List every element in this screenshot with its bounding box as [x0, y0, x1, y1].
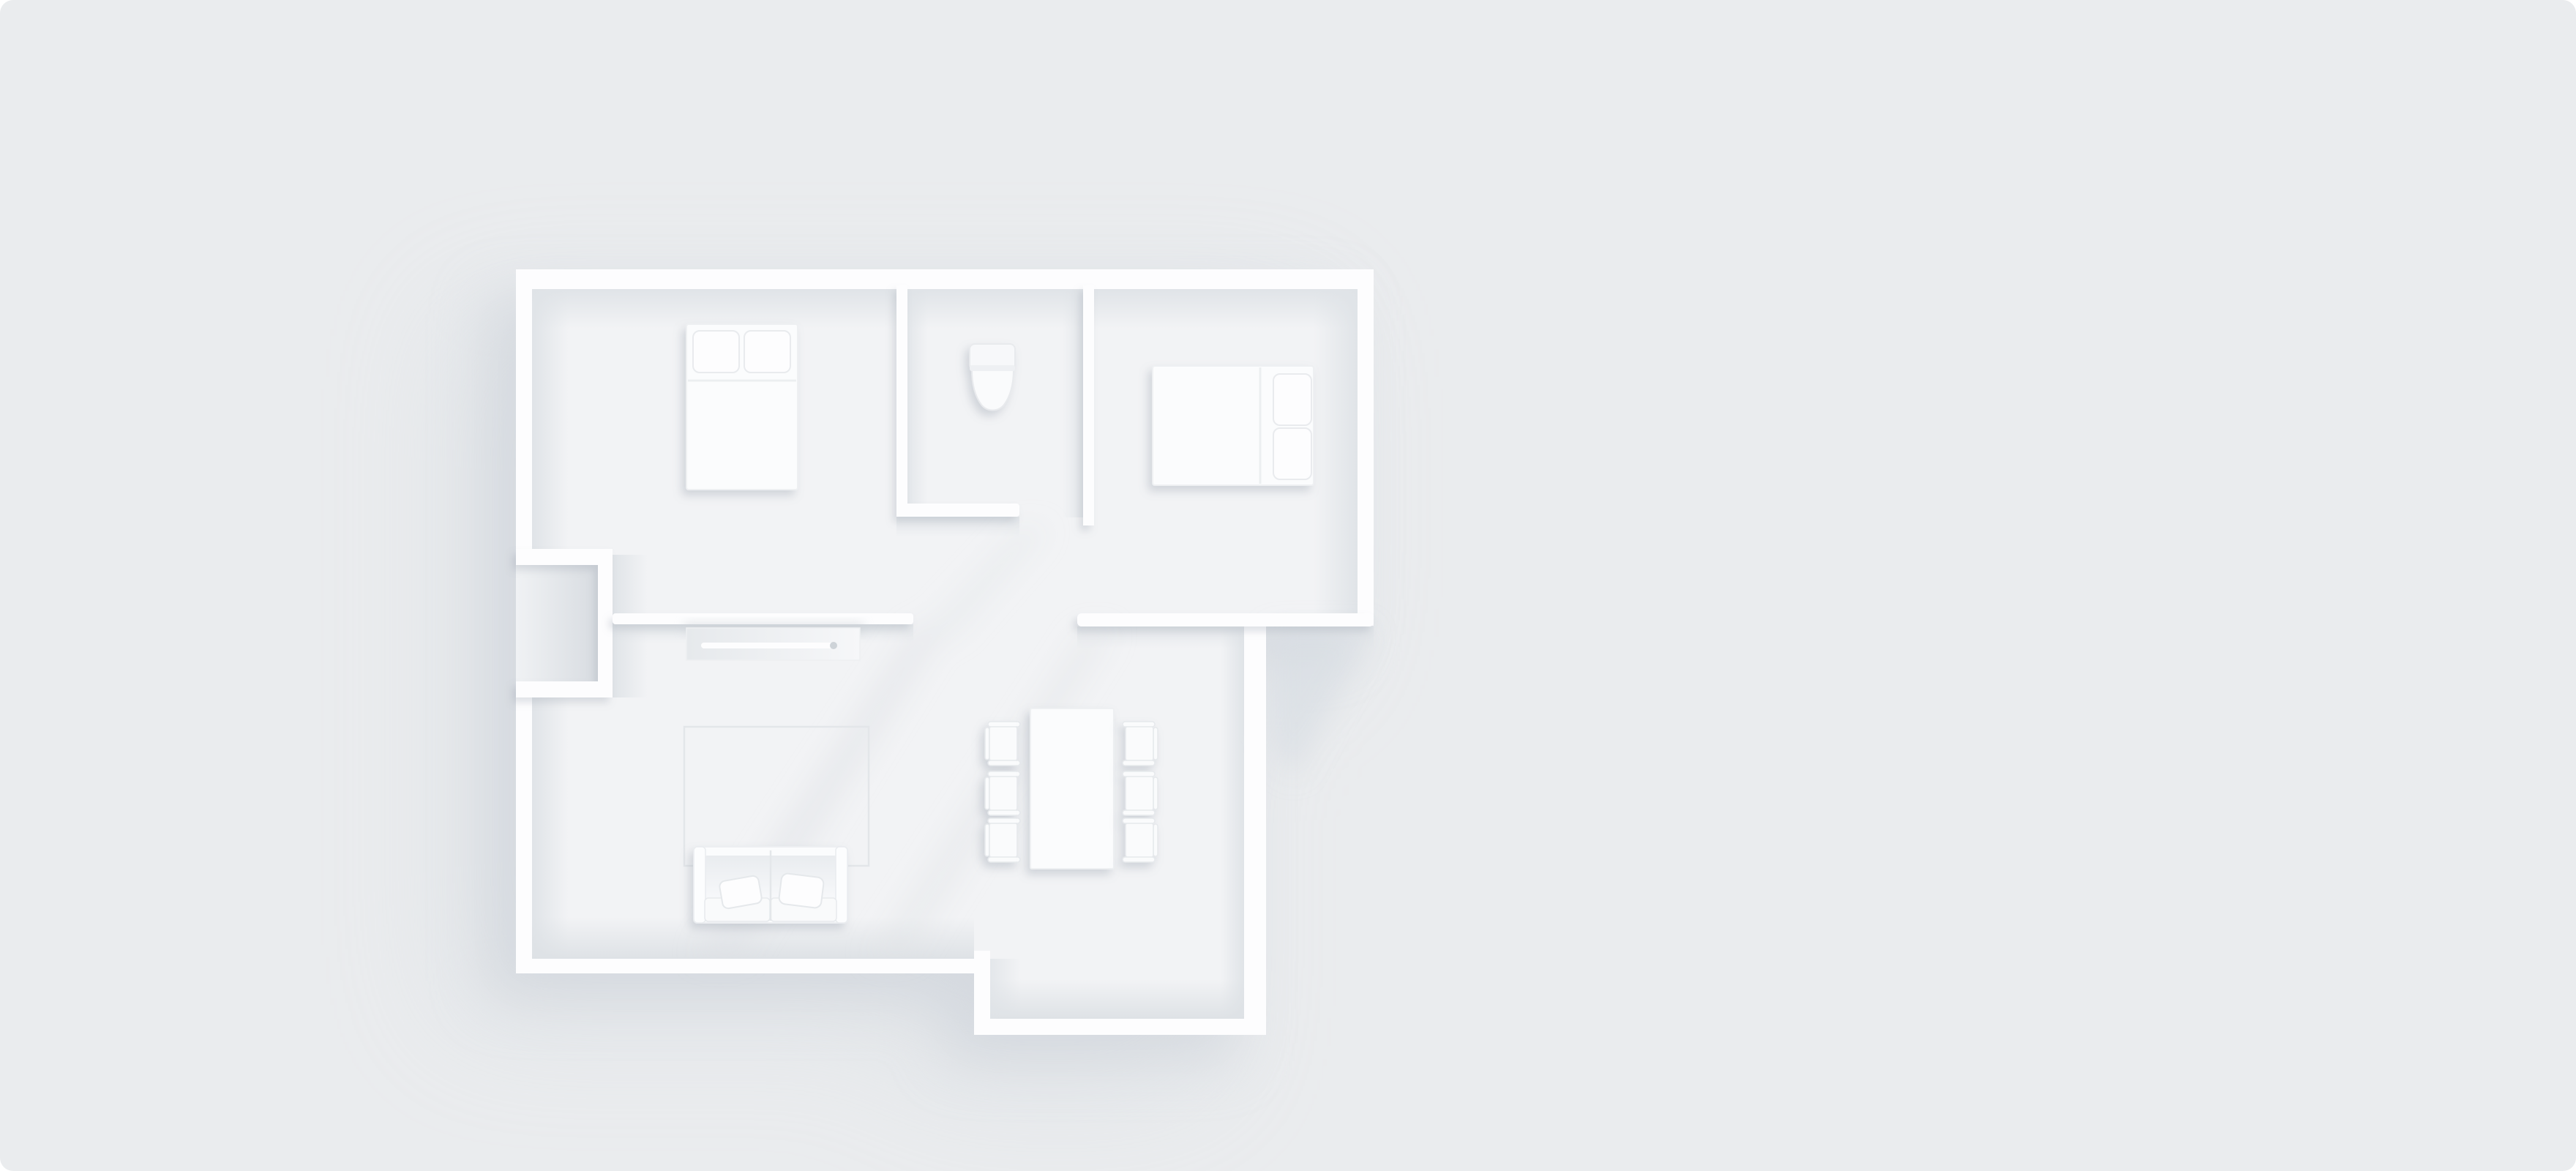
sofa — [694, 847, 847, 923]
bed2-pillow-top — [1273, 374, 1311, 425]
bed1-pillow-left — [693, 331, 739, 373]
chair — [985, 818, 1020, 862]
sofa-throw-pillow-right — [779, 873, 825, 909]
chair — [985, 771, 1020, 815]
wall-bathroom-bottom — [896, 504, 1019, 517]
bed2-pillow-bottom — [1273, 428, 1311, 479]
wall-right — [1358, 269, 1374, 626]
double-bed-1 — [686, 324, 798, 490]
tv-console — [686, 628, 860, 660]
dining-chairs-left — [985, 722, 1020, 862]
floorplan-render — [0, 0, 2576, 1171]
bedroom-2 — [1153, 366, 1314, 485]
wall-left-upper — [516, 269, 532, 550]
dining-chairs-right — [1123, 722, 1158, 862]
tv-panel — [701, 643, 833, 648]
canvas-background — [0, 0, 2576, 1171]
tv-stand-knob — [830, 642, 837, 649]
wall-bottom-living — [516, 959, 990, 973]
dining-table — [1030, 708, 1114, 869]
wall-bedroom1-bathroom — [896, 285, 907, 517]
wall-bedroom2-bottom — [1077, 613, 1374, 626]
wall-left-lower — [516, 697, 532, 973]
chair — [985, 722, 1020, 766]
sofa-throw-pillow-left — [719, 875, 763, 910]
dining-area — [985, 708, 1158, 869]
wall-top — [516, 269, 1374, 289]
bedroom-1 — [686, 324, 798, 490]
vestibule-interior — [516, 565, 598, 681]
wall-bottom-extension — [974, 1019, 1266, 1035]
wall-right-living — [1244, 626, 1266, 1035]
wall-bedroom1-living — [613, 613, 913, 624]
chair — [1123, 722, 1158, 766]
sofa-arm-left — [694, 847, 705, 923]
chair — [1123, 771, 1158, 815]
sofa-arm-right — [836, 847, 847, 923]
chair — [1123, 818, 1158, 862]
double-bed-2 — [1153, 366, 1314, 485]
wall-bathroom-bedroom2 — [1083, 285, 1094, 525]
bed1-pillow-right — [744, 331, 790, 373]
